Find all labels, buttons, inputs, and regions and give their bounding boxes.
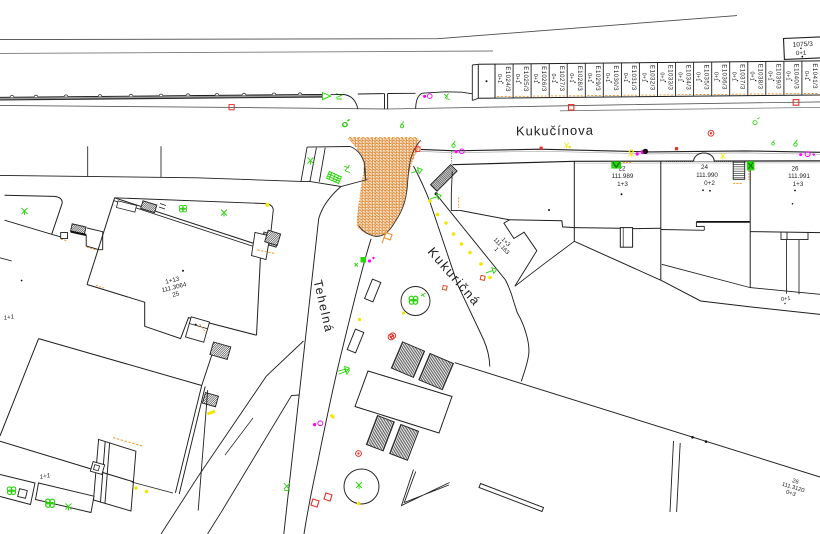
svg-text:E1026/3: E1026/3 <box>540 66 547 92</box>
svg-text:0+1: 0+1 <box>767 71 773 80</box>
svg-text:E1034/3: E1034/3 <box>684 65 691 91</box>
svg-text:0+1: 0+1 <box>749 72 755 81</box>
svg-text:E1028/3: E1028/3 <box>576 66 583 92</box>
svg-text:0+1: 0+1 <box>658 72 664 81</box>
svg-text:0+1: 0+1 <box>785 71 791 80</box>
svg-text:1075/3: 1075/3 <box>793 41 814 49</box>
svg-text:Kukučínova: Kukučínova <box>516 123 594 139</box>
svg-text:E1033/3: E1033/3 <box>666 65 673 91</box>
svg-text:E1029/3: E1029/3 <box>594 66 601 92</box>
svg-text:111.991: 111.991 <box>788 173 810 180</box>
svg-text:0+1: 0+1 <box>640 73 646 82</box>
svg-text:26: 26 <box>791 166 799 173</box>
svg-text:E1036/3: E1036/3 <box>721 64 728 90</box>
svg-text:E1032/3: E1032/3 <box>648 65 655 91</box>
svg-text:0+1: 0+1 <box>604 73 610 82</box>
svg-text:0+1: 0+1 <box>586 73 592 82</box>
svg-text:0+1: 0+1 <box>550 74 556 83</box>
svg-text:0+1: 0+1 <box>731 72 737 81</box>
svg-text:0+1: 0+1 <box>496 74 502 83</box>
svg-text:E1037/3: E1037/3 <box>739 64 746 90</box>
svg-text:E1038/3: E1038/3 <box>757 64 764 90</box>
svg-text:0+1: 0+1 <box>568 73 574 82</box>
svg-text:1+3: 1+3 <box>793 181 804 188</box>
svg-text:E1024/3: E1024/3 <box>504 66 511 92</box>
svg-text:E1025/3: E1025/3 <box>522 66 529 92</box>
svg-text:E1035/3: E1035/3 <box>702 65 709 91</box>
svg-text:E1041/3: E1041/3 <box>811 63 818 89</box>
svg-text:0+1: 0+1 <box>676 72 682 81</box>
svg-text:24: 24 <box>701 164 709 171</box>
svg-text:0+1: 0+1 <box>532 74 538 83</box>
svg-text:111.990: 111.990 <box>696 172 718 179</box>
svg-text:0+1: 0+1 <box>803 71 809 80</box>
svg-text:E1027/3: E1027/3 <box>558 66 565 92</box>
svg-text:111.989: 111.989 <box>612 173 634 180</box>
svg-text:0+1: 0+1 <box>694 72 700 81</box>
svg-text:E1040/3: E1040/3 <box>793 64 800 90</box>
svg-text:0+1: 0+1 <box>622 73 628 82</box>
svg-text:0+1: 0+1 <box>796 50 807 57</box>
svg-text:1+3: 1+3 <box>617 181 628 188</box>
svg-text:0+1: 0+1 <box>713 72 719 81</box>
svg-text:E1031/3: E1031/3 <box>630 65 637 91</box>
svg-text:0+1: 0+1 <box>514 74 520 83</box>
svg-text:E1039/3: E1039/3 <box>775 64 782 90</box>
svg-text:E1030/3: E1030/3 <box>612 65 619 91</box>
svg-text:0+2: 0+2 <box>704 180 715 187</box>
